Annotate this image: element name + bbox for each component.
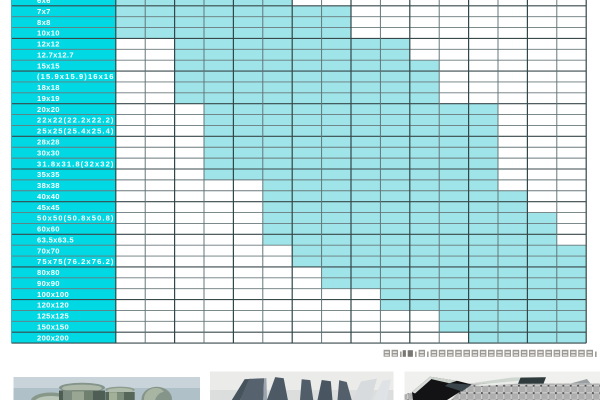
svg-text:75x75(76.2x76.2): 75x75(76.2x76.2)	[37, 257, 115, 266]
svg-text:150x150: 150x150	[37, 322, 69, 331]
svg-text:35x35: 35x35	[37, 170, 60, 179]
svg-text:38x38: 38x38	[37, 181, 60, 190]
svg-text:12.7x12.7: 12.7x12.7	[37, 50, 74, 59]
svg-text:(15.9x15.9)16x16: (15.9x15.9)16x16	[37, 72, 115, 81]
svg-text:28x28: 28x28	[37, 138, 60, 147]
svg-text:60x60: 60x60	[37, 225, 60, 234]
svg-text:70x70: 70x70	[37, 246, 60, 255]
svg-text:7x7: 7x7	[37, 7, 51, 16]
svg-text:40x40: 40x40	[37, 192, 60, 201]
svg-text:63.5x63.5: 63.5x63.5	[37, 235, 74, 244]
svg-text:22x22(22.2x22.2): 22x22(22.2x22.2)	[37, 116, 115, 125]
svg-text:120x120: 120x120	[37, 301, 69, 310]
svg-text:10x10: 10x10	[37, 29, 60, 38]
svg-text:25x25(25.4x25.4): 25x25(25.4x25.4)	[37, 127, 115, 136]
svg-text:19x19: 19x19	[37, 94, 60, 103]
svg-text:45x45: 45x45	[37, 203, 60, 212]
svg-text:100x100: 100x100	[37, 290, 69, 299]
svg-text:90x90: 90x90	[37, 279, 60, 288]
svg-text:20x20: 20x20	[37, 105, 60, 114]
svg-text:80x80: 80x80	[37, 268, 60, 277]
svg-text:15x15: 15x15	[37, 61, 60, 70]
svg-text:18x18: 18x18	[37, 83, 60, 92]
svg-text:31.8x31.8(32x32): 31.8x31.8(32x32)	[37, 159, 115, 168]
svg-text:200x200: 200x200	[37, 333, 69, 342]
svg-text:6x6: 6x6	[37, 0, 51, 5]
svg-text:125x125: 125x125	[37, 312, 69, 321]
svg-text:30x30: 30x30	[37, 148, 60, 157]
svg-text:12x12: 12x12	[37, 40, 60, 49]
svg-text:8x8: 8x8	[37, 18, 51, 27]
svg-text:50x50(50.8x50.8): 50x50(50.8x50.8)	[37, 214, 115, 223]
